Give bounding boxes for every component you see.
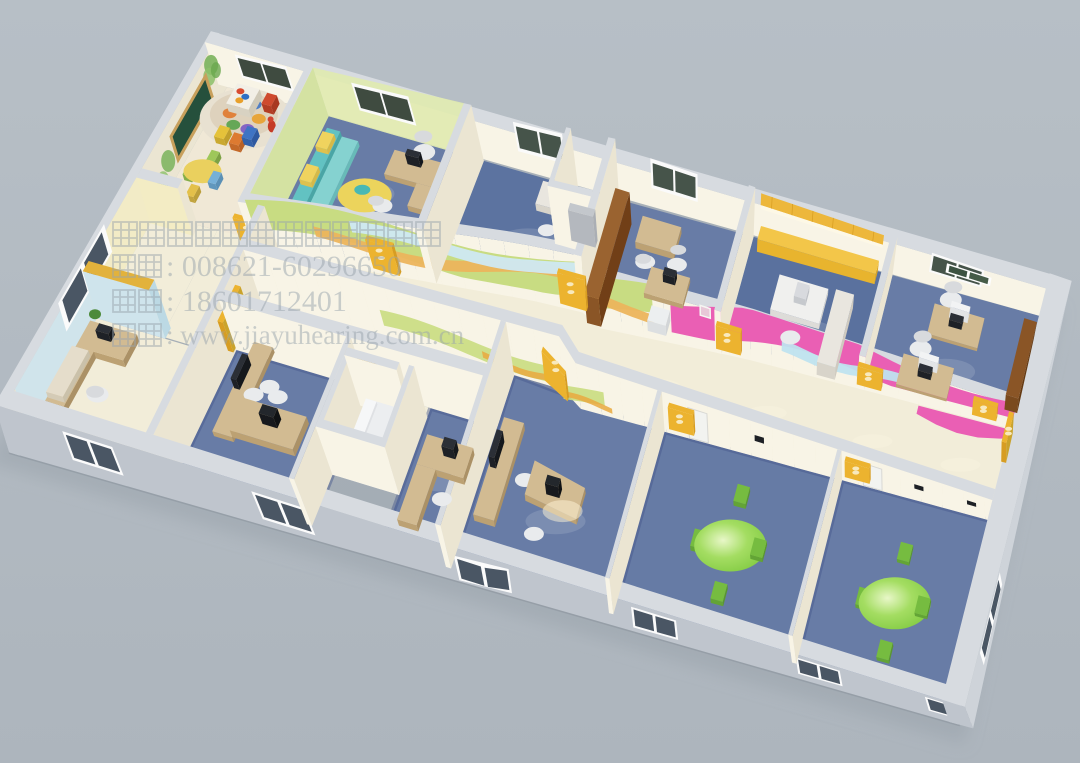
svg-text:: 008621-60296650: : 008621-60296650 (166, 250, 402, 283)
svg-text:: www.jiayuhearing.com.cn: : www.jiayuhearing.com.cn (166, 320, 465, 350)
svg-text:: 18601712401: : 18601712401 (166, 285, 347, 318)
